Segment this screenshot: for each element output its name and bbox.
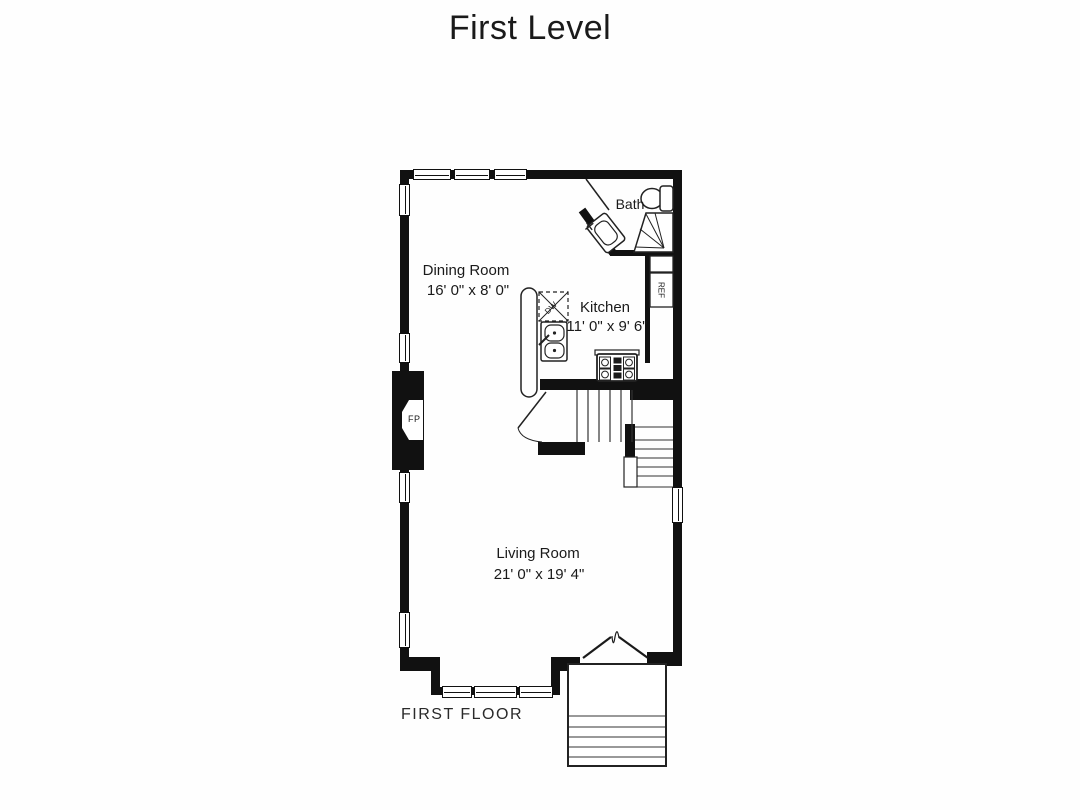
bath-label: Bath bbox=[616, 196, 645, 212]
living-room-label: Living Room bbox=[496, 545, 579, 562]
window bbox=[442, 686, 472, 698]
window bbox=[519, 686, 553, 698]
living-room-dims: 21' 0" x 19' 4" bbox=[494, 566, 585, 583]
entry-stoop bbox=[567, 663, 667, 767]
window bbox=[494, 169, 527, 180]
bath-diagonal-wall bbox=[582, 210, 613, 253]
shower bbox=[634, 213, 673, 252]
stair-door-arc bbox=[518, 428, 542, 442]
window bbox=[474, 686, 517, 698]
fireplace-label: FP bbox=[408, 414, 421, 424]
fridge-alcove-wall bbox=[645, 256, 650, 363]
page-title: First Level bbox=[449, 9, 611, 48]
window bbox=[399, 184, 410, 216]
cabinet bbox=[650, 256, 673, 272]
stairs-lower bbox=[633, 427, 673, 487]
dining-room-label: Dining Room bbox=[423, 262, 510, 279]
dishwasher-label: DW bbox=[543, 300, 559, 316]
bath-door-leaf bbox=[586, 179, 609, 210]
kitchen-counter bbox=[521, 288, 537, 397]
window bbox=[399, 612, 410, 648]
stair-handrail bbox=[624, 457, 637, 487]
stair-wall-mid bbox=[538, 442, 585, 455]
stair-wall-top bbox=[540, 379, 682, 390]
stair-wall-top-right bbox=[630, 390, 682, 400]
window bbox=[399, 472, 410, 503]
bath-sink bbox=[583, 210, 626, 255]
stairs-upper bbox=[577, 390, 632, 442]
window bbox=[413, 169, 451, 180]
kitchen-sink bbox=[539, 322, 567, 361]
first-floor-caption: FIRST FLOOR bbox=[401, 706, 523, 724]
stair-door-leaf bbox=[518, 392, 546, 428]
window bbox=[672, 487, 683, 523]
kitchen-dims: 11' 0" x 9' 6" bbox=[566, 318, 647, 335]
window bbox=[399, 333, 410, 363]
refrigerator-label: REF bbox=[657, 282, 666, 298]
dining-room-dims: 16' 0" x 8' 0" bbox=[427, 282, 509, 299]
entry-doors bbox=[583, 632, 648, 658]
kitchen-label: Kitchen bbox=[580, 299, 630, 316]
wall-right bbox=[673, 170, 682, 666]
toilet bbox=[641, 186, 673, 211]
window bbox=[454, 169, 490, 180]
floor-plan-page: First Level bbox=[0, 0, 1080, 810]
stove bbox=[595, 350, 639, 381]
stair-wall-stub bbox=[625, 424, 635, 458]
